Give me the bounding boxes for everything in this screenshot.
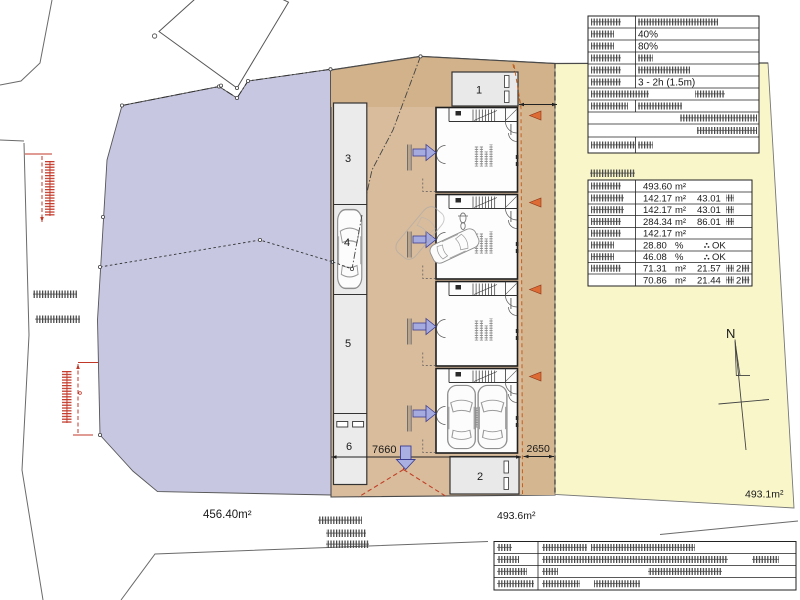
svg-text:4: 4	[344, 237, 350, 249]
svg-text:46.08: 46.08	[643, 252, 667, 263]
svg-text:%: %	[675, 252, 684, 263]
svg-text:6: 6	[346, 441, 352, 453]
svg-text:142.17: 142.17	[643, 205, 672, 216]
svg-text:m²: m²	[675, 181, 686, 192]
svg-text:284.34: 284.34	[643, 217, 672, 228]
svg-text:2650: 2650	[527, 443, 551, 455]
svg-text:456.40m²: 456.40m²	[203, 509, 252, 521]
svg-text:40%: 40%	[638, 30, 658, 41]
svg-text:493.1m²: 493.1m²	[745, 489, 784, 501]
svg-text:21.44: 21.44	[697, 275, 721, 286]
svg-text:70.86: 70.86	[643, 275, 667, 286]
svg-text:%: %	[675, 240, 684, 251]
svg-text:m²: m²	[675, 205, 686, 216]
svg-text:493.60: 493.60	[643, 181, 672, 192]
svg-text:43.01: 43.01	[697, 193, 721, 204]
svg-text:71.31: 71.31	[643, 264, 667, 275]
svg-text:28.80: 28.80	[643, 240, 667, 251]
svg-text:142.17: 142.17	[643, 229, 672, 240]
svg-text:1: 1	[476, 85, 482, 97]
svg-text:3 - 2h (1.5m): 3 - 2h (1.5m)	[638, 78, 695, 89]
svg-text:43.01: 43.01	[697, 205, 721, 216]
svg-text:m²: m²	[675, 275, 686, 286]
svg-text:OK: OK	[712, 240, 726, 251]
svg-text:2: 2	[736, 264, 741, 275]
svg-text:80%: 80%	[638, 42, 658, 53]
svg-text:86.01: 86.01	[697, 217, 721, 228]
svg-text:m²: m²	[675, 217, 686, 228]
svg-text:m²: m²	[675, 193, 686, 204]
svg-text:m²: m²	[675, 229, 686, 240]
svg-text:m²: m²	[675, 264, 686, 275]
svg-text:21.57: 21.57	[697, 264, 721, 275]
svg-text:5: 5	[345, 338, 351, 350]
svg-text:493.6m²: 493.6m²	[497, 510, 536, 522]
svg-text:2: 2	[736, 275, 741, 286]
svg-text:7660: 7660	[372, 444, 396, 456]
svg-text:OK: OK	[712, 252, 726, 263]
svg-text:2: 2	[477, 471, 483, 483]
svg-text:N: N	[726, 326, 735, 341]
svg-text:142.17: 142.17	[643, 193, 672, 204]
svg-text:3: 3	[345, 153, 351, 165]
